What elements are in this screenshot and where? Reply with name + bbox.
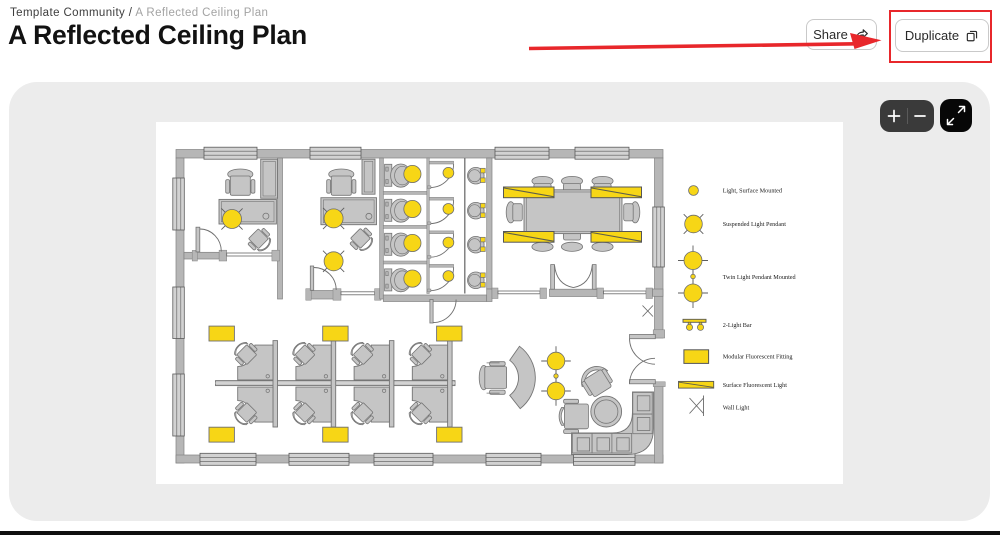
svg-text:Suspended Light Pendant: Suspended Light Pendant: [723, 221, 787, 228]
svg-text:Twin Light Pendant Mounted: Twin Light Pendant Mounted: [723, 274, 797, 281]
svg-text:Light, Surface Mounted: Light, Surface Mounted: [723, 188, 783, 195]
svg-text:Modular Fluorescent Fitting: Modular Fluorescent Fitting: [723, 354, 793, 361]
svg-text:Wall Light: Wall Light: [723, 404, 750, 411]
svg-text:Surface Fluorescent Light: Surface Fluorescent Light: [723, 382, 788, 389]
svg-text:2-Light Bar: 2-Light Bar: [723, 322, 752, 329]
